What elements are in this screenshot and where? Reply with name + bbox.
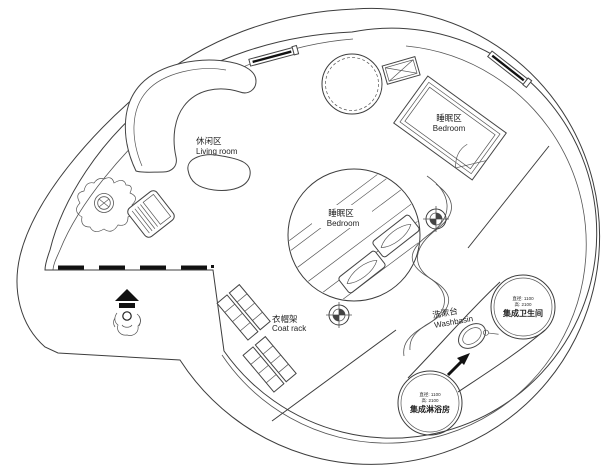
potted-plant bbox=[76, 178, 135, 232]
bathroom-pod: 直径: 1100 高: 2100 集成卫生间 bbox=[491, 275, 555, 339]
floor bbox=[45, 28, 597, 443]
downlight-icon bbox=[326, 302, 352, 328]
coat-rack-unit bbox=[243, 337, 296, 392]
label-coat-rack: 衣帽架 Coat rack bbox=[272, 314, 307, 333]
person-figure bbox=[114, 312, 141, 336]
shower-pod: 直径: 1100 高: 2100 集成淋浴房 bbox=[398, 371, 462, 435]
bedroom-upper-label-zh: 睡眠区 bbox=[436, 113, 462, 123]
floor-plan-canvas: 直径: 1100 高: 2100 集成卫生间 直径: 1100 高: 2100 … bbox=[0, 0, 611, 473]
coffee-table bbox=[188, 155, 250, 191]
living-room-label-zh: 休闲区 bbox=[196, 136, 222, 146]
door-dot bbox=[211, 265, 214, 268]
bathroom-pod-name: 集成卫生间 bbox=[502, 308, 543, 318]
bedroom-upper-label-en: Bedroom bbox=[433, 124, 466, 133]
floor-plan-page: 直径: 1100 高: 2100 集成卫生间 直径: 1100 高: 2100 … bbox=[0, 0, 611, 473]
bedroom-center-label-zh: 睡眠区 bbox=[328, 208, 354, 218]
lounge-chair bbox=[126, 189, 177, 240]
pillow bbox=[372, 214, 421, 258]
label-living-room: 休闲区 Living room bbox=[196, 136, 238, 156]
coat-rack-label-zh: 衣帽架 bbox=[272, 314, 298, 324]
round-rug bbox=[322, 54, 382, 114]
shower-pod-spec1: 直径: 1100 bbox=[419, 391, 441, 397]
wall-shelf-top-left bbox=[249, 46, 299, 67]
flow-arrow bbox=[448, 353, 470, 375]
bathroom-pod-spec1: 直径: 1100 bbox=[512, 295, 534, 301]
entrance bbox=[58, 265, 214, 335]
downlight-icon bbox=[423, 206, 449, 232]
coat-rack-label-en: Coat rack bbox=[272, 324, 307, 333]
coat-rack-unit bbox=[217, 285, 270, 340]
shower-pod-spec2: 高: 2100 bbox=[421, 397, 439, 404]
ceiling-vent-box bbox=[382, 57, 420, 85]
bedroom-center-label-en: Bedroom bbox=[327, 219, 360, 228]
partition-lines bbox=[272, 146, 549, 421]
curtain-wave bbox=[404, 176, 452, 356]
bathroom-pod-spec2: 高: 2100 bbox=[514, 301, 532, 308]
wall-shelf-top-right bbox=[487, 50, 531, 87]
entry-arrow bbox=[115, 289, 139, 308]
living-room-label-en: Living room bbox=[196, 147, 238, 156]
pillow bbox=[338, 250, 387, 294]
outer-wall bbox=[17, 8, 600, 464]
shower-pod-name: 集成淋浴房 bbox=[409, 404, 450, 414]
